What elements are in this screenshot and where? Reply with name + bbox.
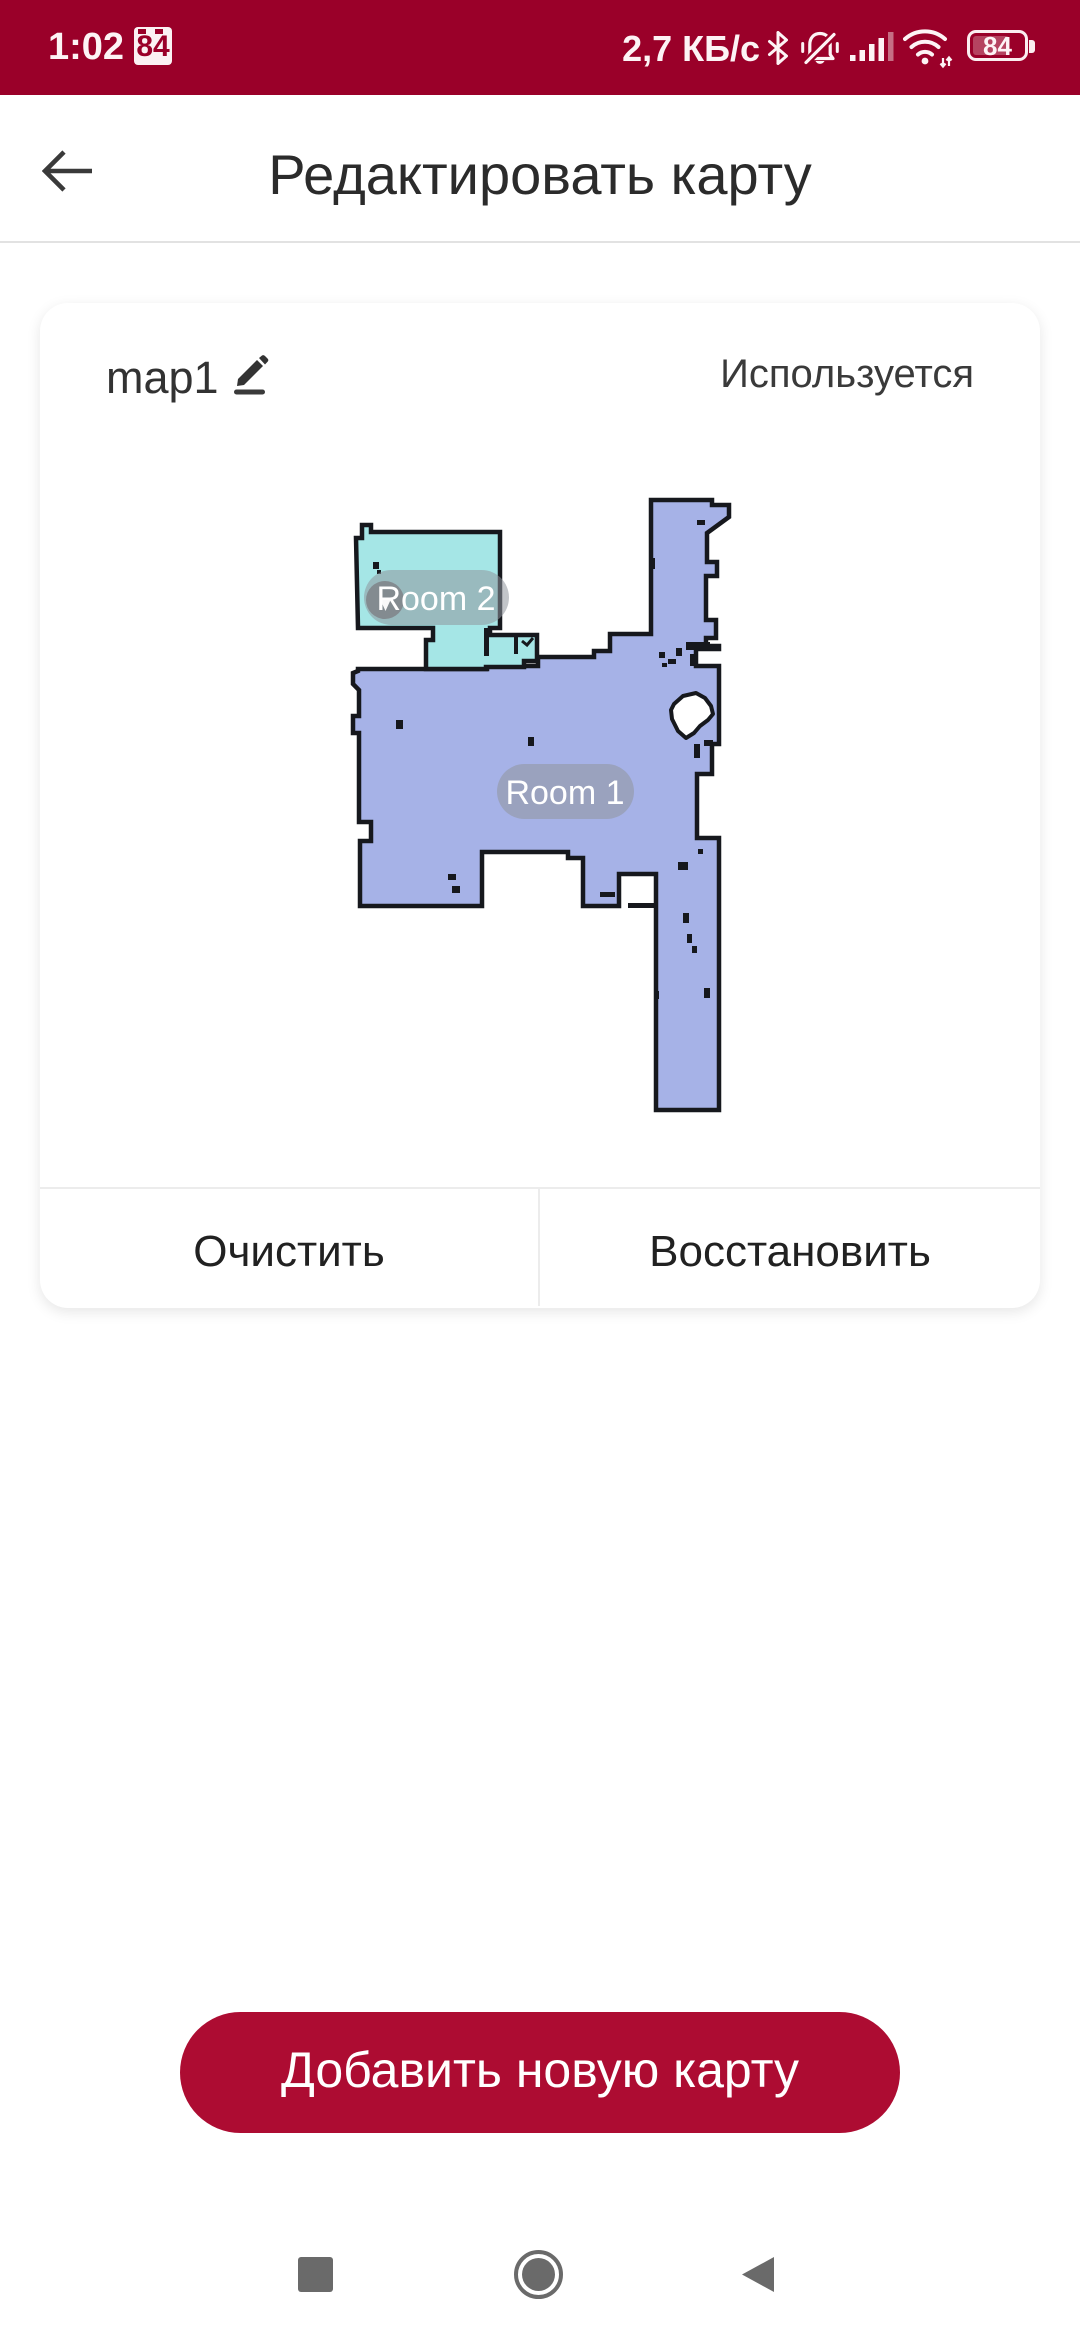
svg-text:Room 1: Room 1	[505, 774, 624, 812]
svg-text:Room 2: Room 2	[376, 580, 495, 618]
